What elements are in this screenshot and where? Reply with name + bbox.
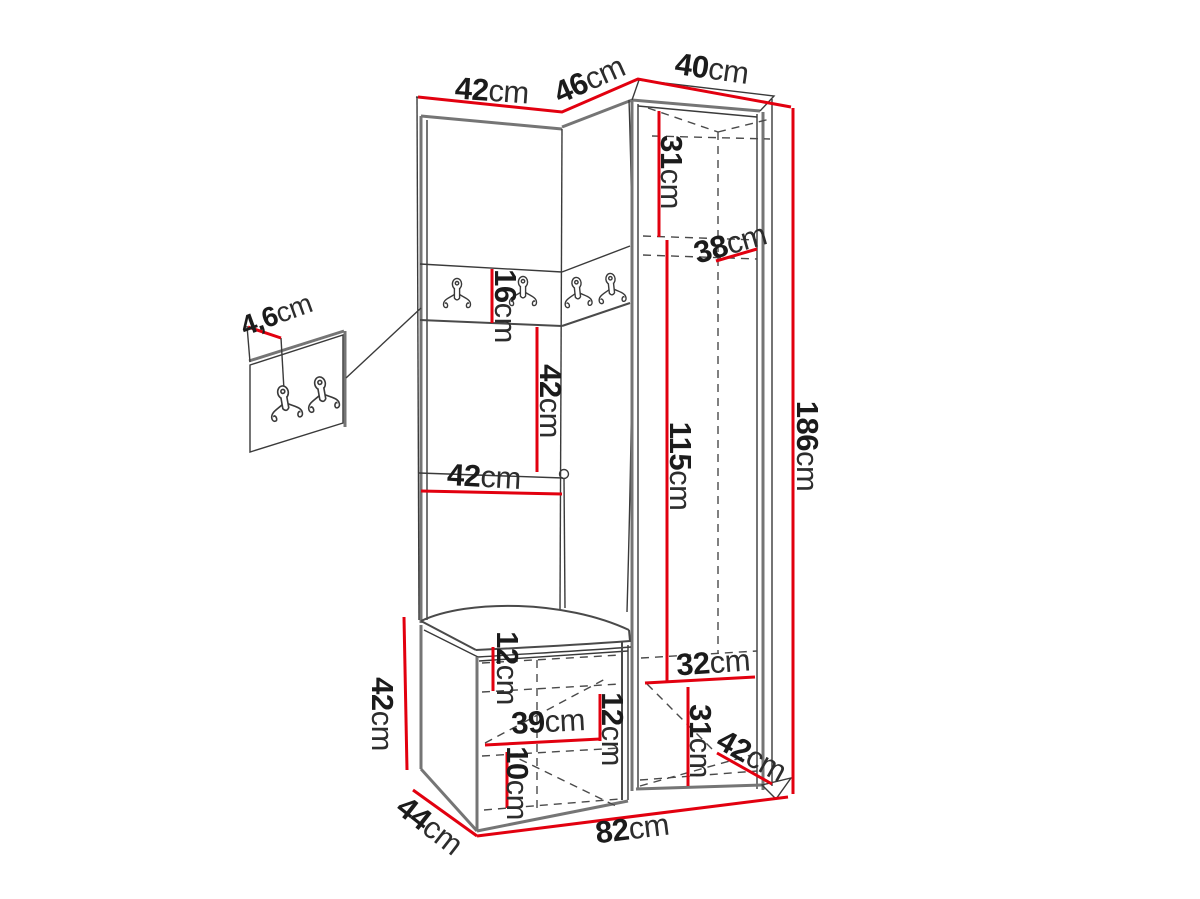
coat-hook-icon bbox=[267, 383, 303, 421]
dim-label-bench-inner-width: 39cm bbox=[510, 702, 586, 741]
dim-label-cabinet-inner-height: 115cm bbox=[664, 422, 699, 511]
dim-line-bench-height bbox=[404, 617, 407, 770]
dim-label-bench-middle-gap: 12cm bbox=[596, 692, 631, 766]
dimension-labels: 42cm 46cm 40cm 31cm 38cm 16cm 42cm 42cm … bbox=[236, 46, 825, 862]
dim-label-upper-inner-height: 31cm bbox=[655, 135, 690, 209]
dim-label-bench-height: 42cm bbox=[366, 677, 401, 751]
dim-label-middle-section-height: 42cm bbox=[534, 364, 569, 438]
dim-label-base-depth-right: 42cm bbox=[711, 722, 793, 788]
open-shelf-unit bbox=[416, 97, 569, 623]
dim-label-hook-panel-height: 16cm bbox=[489, 269, 524, 343]
coat-hook-icon bbox=[596, 272, 626, 304]
dim-label-top-right-width: 40cm bbox=[673, 46, 751, 91]
dim-label-shelf-width: 42cm bbox=[446, 457, 522, 496]
dim-label-top-left-width: 42cm bbox=[454, 70, 530, 110]
dim-label-total-width: 82cm bbox=[593, 806, 671, 850]
corner-section bbox=[562, 100, 632, 612]
dim-label-upper-shelf-depth: 38cm bbox=[690, 216, 771, 270]
coat-hook-icon bbox=[304, 374, 340, 412]
coat-hooks bbox=[267, 272, 627, 422]
dim-label-base-depth-left: 44cm bbox=[390, 788, 470, 861]
dim-label-hook-board-thickness: 4,6cm bbox=[236, 287, 316, 341]
dim-label-bench-upper-gap: 12cm bbox=[491, 631, 526, 705]
dim-label-bench-lower-gap: 10cm bbox=[501, 746, 536, 820]
coat-hook-icon bbox=[444, 278, 471, 307]
dim-line-bench-inner-width bbox=[485, 739, 600, 745]
dim-label-shoe-shelf-height: 31cm bbox=[684, 704, 719, 778]
diagram-svg: 42cm 46cm 40cm 31cm 38cm 16cm 42cm 42cm … bbox=[0, 0, 1200, 899]
dim-label-total-height: 186cm bbox=[791, 401, 826, 492]
furniture-dimension-diagram: 42cm 46cm 40cm 31cm 38cm 16cm 42cm 42cm … bbox=[0, 0, 1200, 899]
extension-line bbox=[281, 338, 284, 390]
dim-label-shoe-shelf-width: 32cm bbox=[675, 642, 751, 682]
leader-line bbox=[346, 308, 421, 378]
coat-hook-icon bbox=[562, 276, 592, 308]
